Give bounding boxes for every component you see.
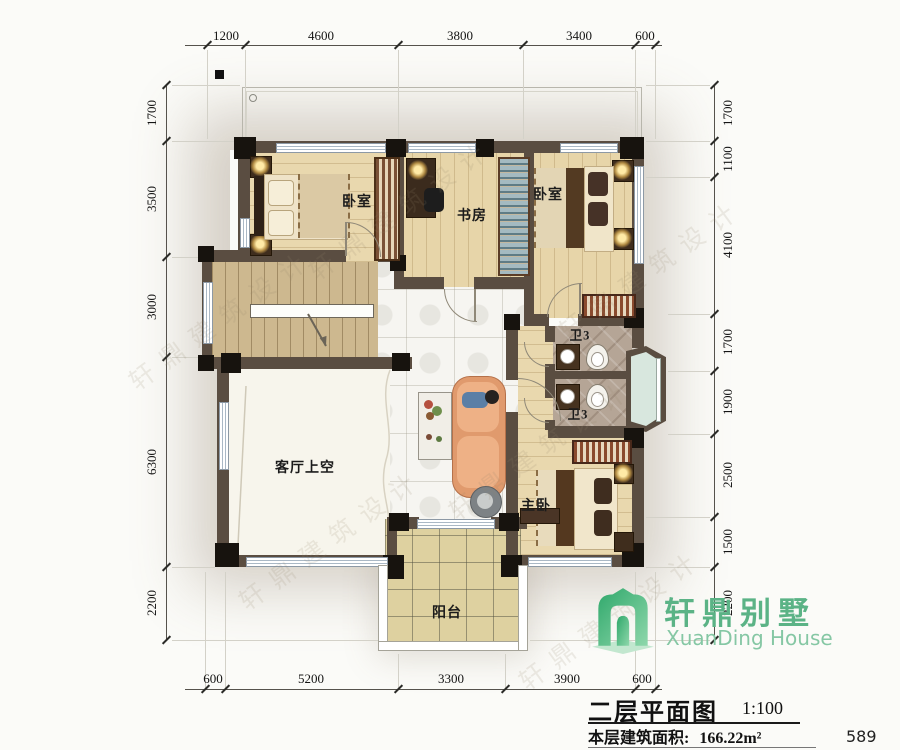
coffee-table xyxy=(418,392,452,460)
stair-direction-arrow xyxy=(290,300,346,360)
room-label-study: 书房 xyxy=(457,205,487,225)
window xyxy=(408,143,476,153)
ext-line xyxy=(172,141,236,142)
wall-hall-master-a xyxy=(506,322,518,380)
window xyxy=(276,143,386,153)
floor-lamp-top xyxy=(477,493,493,509)
dim-label: 3900 xyxy=(554,671,580,687)
desk-chair xyxy=(424,188,444,212)
dim-label: 1700 xyxy=(720,329,736,355)
dim-label: 3400 xyxy=(566,28,592,44)
eave-corner-circle xyxy=(249,94,257,102)
dim-label: 4600 xyxy=(308,28,334,44)
dim-label: 1700 xyxy=(144,100,160,126)
dim-label: 1500 xyxy=(720,529,736,555)
lamp-glow xyxy=(408,160,428,180)
dim-label: 3800 xyxy=(447,28,473,44)
ext-line xyxy=(172,85,240,86)
window xyxy=(203,282,213,344)
column xyxy=(215,543,239,567)
window xyxy=(634,166,644,264)
column xyxy=(620,137,644,159)
ext-line xyxy=(172,640,378,641)
eave-inner-line xyxy=(246,91,638,144)
lamp-glow xyxy=(612,228,632,248)
dim-label: 1900 xyxy=(720,389,736,415)
flowers xyxy=(436,436,442,442)
wall-bath-divider xyxy=(553,371,630,379)
drawing-scale: 1:100 xyxy=(742,698,783,719)
floor-area-value: 166.22m² xyxy=(699,730,761,747)
window xyxy=(219,402,229,470)
room-label-balcony: 阳台 xyxy=(432,602,462,622)
bookshelf xyxy=(498,157,530,276)
wall-study-bottom-a xyxy=(394,277,444,289)
column xyxy=(504,314,520,330)
balcony-wall-bottom xyxy=(378,641,528,651)
dim-label: 5200 xyxy=(298,671,324,687)
balcony-sliding-door xyxy=(417,519,495,529)
dim-label: 1700 xyxy=(720,100,736,126)
column xyxy=(476,139,494,157)
bed-headboard xyxy=(254,176,264,236)
dim-label: 600 xyxy=(203,671,223,687)
pillow xyxy=(594,510,612,536)
dim-label: 4100 xyxy=(720,232,736,258)
ext-line xyxy=(398,50,399,139)
ext-line xyxy=(523,50,524,139)
dim-line-right xyxy=(714,85,715,641)
wall-hall-master-b xyxy=(506,412,518,567)
floor-area-text: 本层建筑面积: 166.22m² xyxy=(588,724,761,748)
dim-label: 2500 xyxy=(720,462,736,488)
ext-line xyxy=(646,567,710,568)
person-torso xyxy=(462,392,488,408)
column xyxy=(499,513,519,531)
toilet xyxy=(586,344,609,370)
window xyxy=(528,557,612,567)
column xyxy=(389,513,409,531)
area-underline xyxy=(588,747,816,748)
room-label-bedroom-right: 卧室 xyxy=(533,184,563,204)
window xyxy=(560,143,618,153)
lamp-glow xyxy=(250,156,270,176)
column xyxy=(198,355,214,371)
dim-label: 1100 xyxy=(720,146,736,172)
pillow xyxy=(588,202,608,226)
column xyxy=(392,353,410,371)
floor-plan-page: 1200 4600 3800 3400 600 600 5200 3300 39… xyxy=(0,0,900,750)
room-label-bath-upper: 卫3 xyxy=(570,325,591,344)
wall-bedroom-right-bottom-a xyxy=(524,314,549,326)
pillow xyxy=(268,210,294,236)
dim-line-left xyxy=(166,85,167,641)
nightstand xyxy=(614,532,634,552)
door-leaf xyxy=(345,222,347,256)
page-number: 589 xyxy=(846,727,877,746)
person-head xyxy=(485,390,499,404)
dim-label: 2200 xyxy=(144,590,160,616)
door-leaf xyxy=(474,289,476,321)
site-marker xyxy=(215,70,224,79)
window xyxy=(246,557,388,567)
logo-name-en: XuanDing House xyxy=(666,626,833,650)
ext-line xyxy=(398,654,399,688)
ext-line xyxy=(668,371,710,372)
dim-label: 1200 xyxy=(213,28,239,44)
ext-line xyxy=(505,654,506,688)
toilet xyxy=(586,384,609,410)
ext-line xyxy=(646,85,710,86)
ext-line xyxy=(668,434,710,435)
flowers xyxy=(426,434,432,440)
column xyxy=(198,246,214,262)
wall-bath-west-a xyxy=(545,326,555,342)
ext-line xyxy=(207,50,208,139)
dim-line-top xyxy=(185,45,662,46)
sink-basin xyxy=(560,349,575,364)
logo-house-icon xyxy=(586,582,660,656)
door-leaf xyxy=(579,283,581,316)
ext-line xyxy=(172,257,200,258)
pillow xyxy=(588,172,608,196)
column xyxy=(221,353,241,373)
balcony-floor xyxy=(385,519,521,644)
bed-runner xyxy=(566,168,584,248)
ext-line xyxy=(646,141,710,142)
flowers xyxy=(426,412,434,420)
bay-window-glazing-line xyxy=(656,358,661,422)
closet xyxy=(572,440,632,464)
sink-basin xyxy=(560,389,575,404)
pillow xyxy=(268,180,294,206)
lamp-glow xyxy=(612,160,632,180)
room-label-bath-lower: 卫3 xyxy=(568,404,589,423)
sofa-cushion xyxy=(457,436,499,488)
balcony-wall-right xyxy=(518,565,528,651)
bed-blanket xyxy=(534,168,568,248)
dim-label: 3000 xyxy=(144,294,160,320)
dim-label: 3500 xyxy=(144,186,160,212)
pillow xyxy=(594,478,612,504)
room-label-bedroom-left: 卧室 xyxy=(342,191,372,211)
dim-label: 600 xyxy=(632,671,652,687)
ext-line xyxy=(172,357,200,358)
room-label-living-void: 客厅上空 xyxy=(275,457,335,477)
ext-line xyxy=(668,314,710,315)
ext-line xyxy=(646,177,710,178)
room-label-master: 主卧 xyxy=(521,495,551,515)
ext-line xyxy=(646,517,710,518)
ext-line xyxy=(225,572,226,688)
closet xyxy=(582,294,636,318)
lamp-glow xyxy=(613,463,633,483)
floor-area-label: 本层建筑面积: xyxy=(588,730,689,747)
dim-tick xyxy=(162,635,171,644)
ext-line xyxy=(655,50,656,139)
dim-label: 600 xyxy=(635,28,655,44)
dim-label: 3300 xyxy=(438,671,464,687)
window xyxy=(240,218,250,248)
ext-line xyxy=(635,50,636,139)
column xyxy=(386,139,406,157)
ext-line xyxy=(172,567,215,568)
ext-line xyxy=(245,50,246,139)
balcony-wall-left xyxy=(378,565,388,651)
dim-label: 6300 xyxy=(144,449,160,475)
dim-line-bottom xyxy=(185,689,662,690)
